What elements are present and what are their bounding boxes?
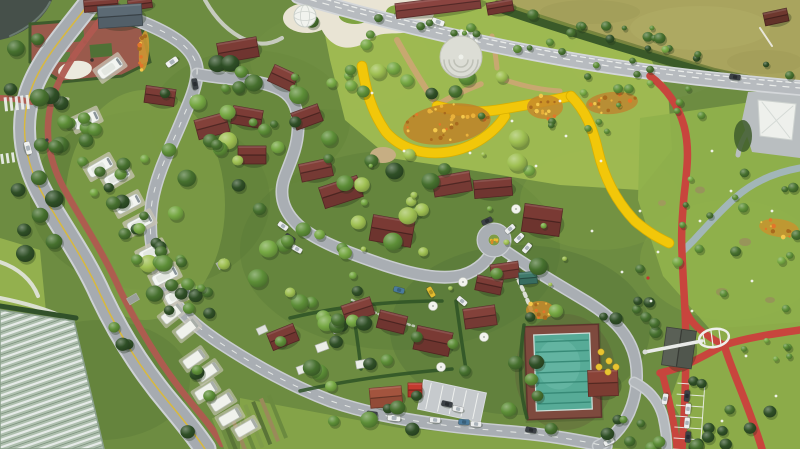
tree [694,245,703,254]
dirt-patch [765,297,775,303]
tree [702,431,714,442]
tree [374,14,383,22]
tree [744,423,756,434]
tree [387,62,401,75]
tree [381,354,394,366]
tree [48,140,62,153]
tree [773,356,779,361]
tree [165,279,178,291]
tree [777,257,786,265]
tree [275,336,287,347]
tree [131,254,142,264]
lamp-post [639,210,642,213]
tree [94,166,105,176]
white-dome [294,5,316,27]
lamp-post [771,210,774,213]
flower-speckle [535,309,538,312]
tree [160,89,170,99]
tree [527,9,538,19]
tree [11,183,26,197]
tree [679,222,686,228]
car-cabin [474,422,478,426]
tree [390,400,405,414]
lamp-post [535,165,538,168]
zebra-crossing [0,152,15,164]
tree [764,338,770,343]
tree [653,436,665,447]
tree [616,103,621,108]
tree [30,89,49,107]
tree [661,46,669,53]
flower-speckle [553,101,555,103]
tree [672,257,683,267]
tree [629,58,636,64]
tree [459,365,471,376]
tree [180,425,195,438]
flower-speckle [545,303,547,305]
tree [782,305,790,313]
tree [785,71,794,79]
tree [4,83,17,95]
tree [604,129,610,135]
tree [584,125,591,132]
tree [253,203,266,215]
tree [633,297,642,305]
tree [447,339,458,349]
terrace-table [90,58,94,62]
parasol-pole [462,281,464,283]
tree [328,416,340,427]
tree [619,416,627,423]
tree [183,303,195,314]
tree [717,426,728,436]
parasol-pole [515,208,517,210]
tree [416,22,425,30]
tree [400,74,414,87]
tree [688,176,694,182]
water-tone [727,50,800,74]
tree [566,28,575,37]
tree [289,87,308,104]
tree [354,177,370,192]
tree [116,158,130,171]
tree [176,257,187,267]
tree [646,66,654,73]
tree [558,48,566,55]
tree [289,116,301,127]
tree [487,206,492,211]
tree [345,80,357,91]
car-cabin [685,394,689,398]
tree [624,84,634,93]
tree [529,355,544,369]
hedge-by-pier [734,120,752,152]
tree [697,379,707,388]
yellow-parasol [613,364,619,370]
lamp-post [371,92,374,95]
flower-speckle [536,103,539,106]
tree [410,192,417,198]
flower-speckle [534,109,539,114]
tree [325,381,337,392]
flower-speckle [543,315,548,320]
tree [613,84,623,93]
tree [426,19,434,26]
car-cabin [433,418,437,422]
tree [31,170,47,185]
tree [647,80,654,86]
tree [303,360,321,376]
tree [88,123,102,136]
tree [763,62,769,68]
tree [351,215,366,229]
tree [189,94,206,110]
tree [724,405,735,415]
tree [249,118,258,126]
tree [31,33,44,45]
tree [349,272,357,279]
tree [45,190,64,207]
yellow-parasol [598,349,604,355]
tree [177,170,196,187]
lamp-post [657,251,660,254]
tree [694,51,701,58]
tree [77,157,88,167]
tree [360,39,372,50]
tree [448,286,453,290]
tree [490,268,502,279]
tree [450,30,457,37]
tree [258,124,271,136]
lamp-post [621,271,624,274]
tree [720,290,728,298]
dirt-patch [695,187,705,194]
lamp-post [469,152,472,155]
tree [462,31,467,36]
tree [546,38,554,45]
tree [525,312,536,322]
tree [633,71,640,78]
flower-speckle [553,114,556,117]
tree [507,153,526,171]
lamp-post [511,120,514,123]
flower-speckle [547,109,551,113]
tree [398,207,417,224]
tree [32,208,48,223]
tree [601,21,611,31]
tree [296,222,311,236]
tree [385,163,403,180]
tree [329,336,343,349]
tree [593,62,600,68]
flower-speckle [539,94,543,98]
tree [418,247,428,256]
light-mast-base [643,350,648,355]
tree [649,26,654,31]
tree [541,223,547,229]
tree [104,183,114,193]
yellow-parasol [606,358,612,364]
tree [270,120,278,128]
tree [370,64,386,79]
flower-speckle [528,302,532,306]
tree [622,26,627,31]
tree [321,131,337,146]
tree [411,331,423,342]
tree [192,365,203,375]
tree [473,30,481,37]
tree [155,255,173,272]
car-cabin [685,421,689,425]
tree [211,139,222,149]
tree [383,233,402,251]
tree [644,297,655,307]
tree [562,256,567,261]
tree [645,45,652,51]
tree [503,239,509,245]
yellow-parasol [596,364,602,370]
parasol-pole [483,336,485,338]
tree [636,419,645,427]
tree [139,211,149,220]
car-cabin [686,407,690,411]
tree [232,81,246,93]
tree [271,141,284,153]
lamp-post [650,300,653,303]
tree [218,258,230,269]
amphitheater-center [459,55,464,60]
tree [635,264,645,273]
tree [411,391,422,401]
tree [624,436,635,446]
tree [548,283,552,287]
tree [46,234,63,249]
lamp-post [745,355,748,358]
tree [162,143,177,157]
tree [788,183,799,193]
person [646,276,649,279]
dirt-patch [739,238,751,246]
tree [115,338,129,351]
flower-speckle [537,303,539,305]
tree [599,313,608,321]
lamp-post [721,420,724,423]
tree [140,155,149,163]
tree [336,175,353,191]
tree [529,258,548,275]
tree [108,322,119,333]
tree [584,73,591,80]
tree [605,35,614,43]
lamp-post [711,150,714,153]
tree [781,186,788,192]
tree [706,212,713,219]
tree [683,202,689,208]
lamp-post [565,135,568,138]
person [45,138,48,141]
tree [146,286,164,302]
tree [118,228,130,239]
tree [357,86,370,98]
tree [133,223,145,234]
tree [449,85,463,98]
tree [203,308,215,319]
tree [532,390,544,401]
tree [232,155,243,165]
tree [549,304,563,317]
car-cabin [733,75,738,79]
roof-plane-shade [588,382,618,396]
lamp-post [591,230,594,233]
car-cabin [462,420,466,424]
tree [481,152,485,156]
tree [496,71,508,82]
lamp-post [600,160,603,163]
tree [478,112,486,119]
tree [16,245,35,262]
tree [595,119,602,125]
tree [786,353,792,359]
parasol-pole [432,305,434,307]
tree [730,246,741,256]
dirt-patch [658,200,666,206]
tree [235,66,248,78]
tree [291,73,299,80]
lamp-post [403,150,406,153]
tree [525,373,538,385]
aerial-resort-photo [0,0,800,449]
tree [259,240,278,257]
tree [438,163,451,175]
tree [513,45,522,53]
tree [509,130,529,148]
tree [654,33,666,44]
flower-speckle [542,310,545,313]
flower-speckle [546,100,549,103]
tree [197,284,205,292]
tree [425,88,438,100]
lamp-post [699,220,702,223]
tree [339,247,352,259]
tree [738,203,749,213]
flower-speckle [540,101,542,103]
lamp-post [559,100,562,103]
tree [7,40,25,56]
tree [360,412,378,428]
lamp-post [751,280,754,283]
tree [601,428,615,440]
roof-highlight [238,146,266,148]
tree [203,390,215,401]
tree [366,30,375,38]
tree [649,318,660,328]
tree [697,112,705,120]
tree [168,206,183,220]
terrace-garden-bed [90,43,113,58]
roof-highlight [408,383,422,385]
car-cabin [686,435,690,439]
tree [221,84,230,92]
flower-speckle [541,109,544,112]
flower-speckle [537,313,541,317]
tree [232,179,246,192]
yellow-parasol [605,369,611,375]
tree [326,78,337,88]
tree [285,288,296,298]
tree [281,235,294,247]
tree [548,123,554,129]
tree [740,169,750,178]
tree [783,344,789,350]
tree [741,346,747,352]
tree [786,252,794,259]
flower-speckle [545,112,548,115]
tree [685,86,691,92]
tree [609,312,622,324]
tree [164,305,175,315]
tree [501,402,517,416]
aerial-scene [0,0,800,449]
tree [545,423,558,435]
tree [345,65,356,75]
tree [356,316,372,331]
tree [405,423,419,436]
tree [580,89,588,96]
tree [352,286,363,296]
tree [369,164,373,168]
tree [90,189,99,197]
lamp-post [691,310,694,313]
tree [508,356,523,370]
tree [421,173,439,190]
tree [220,105,236,120]
tree [106,196,120,209]
parasol-pole [440,366,442,368]
island-flower [496,238,499,241]
tree [363,358,377,370]
tree [674,108,681,114]
tree [527,45,533,50]
flower-speckle [529,106,533,110]
tree [732,194,738,200]
tree [331,313,345,326]
tree [579,23,586,30]
tree [78,112,90,123]
tree [314,230,325,240]
tree [323,154,333,163]
lamp-post [775,395,778,398]
tree [763,406,776,418]
tree [361,199,368,206]
tree [361,247,366,252]
tree [248,269,268,287]
island-flower [491,241,494,244]
tree [17,224,31,237]
tree [57,115,72,129]
lamp-post [730,190,733,193]
tree [676,99,684,106]
